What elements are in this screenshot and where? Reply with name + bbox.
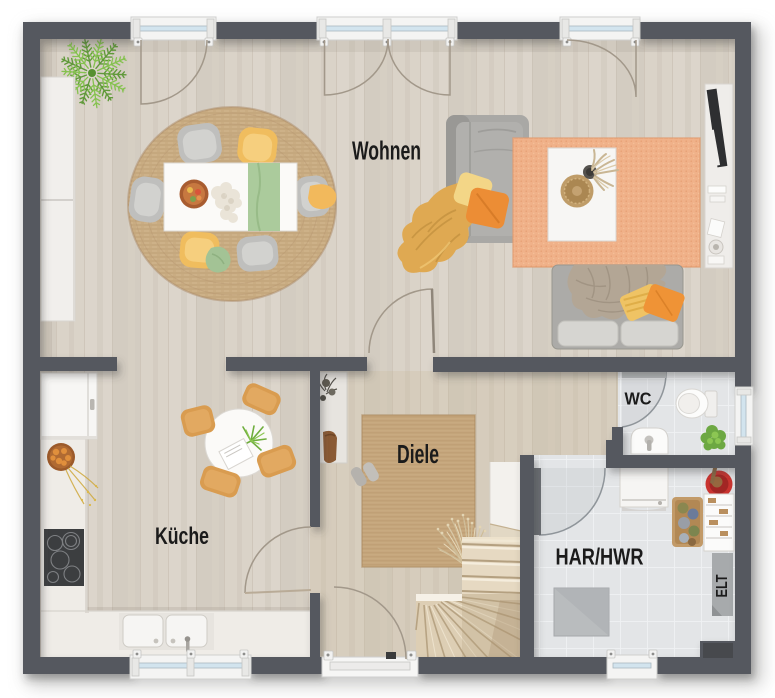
- svg-text:Wohnen: Wohnen: [352, 138, 421, 166]
- svg-text:HAR/HWR: HAR/HWR: [556, 544, 644, 570]
- svg-text:ELT: ELT: [714, 574, 731, 597]
- svg-text:Diele: Diele: [397, 441, 439, 469]
- svg-text:WC: WC: [625, 389, 652, 409]
- svg-text:Küche: Küche: [155, 523, 209, 550]
